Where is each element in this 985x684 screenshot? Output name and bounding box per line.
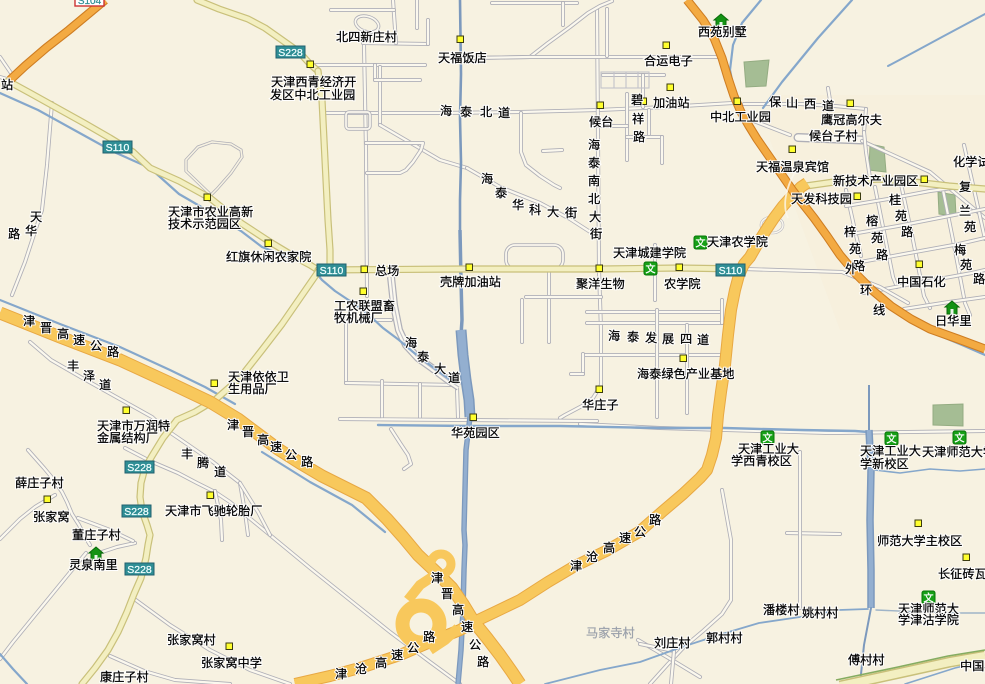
svg-text:路: 路 xyxy=(423,629,435,644)
svg-text:学新校区: 学新校区 xyxy=(860,456,909,471)
svg-text:丰: 丰 xyxy=(67,359,79,373)
svg-text:S110: S110 xyxy=(106,142,130,154)
svg-text:街: 街 xyxy=(590,227,602,241)
svg-text:候台子村: 候台子村 xyxy=(809,128,858,143)
svg-text:天津城建学院: 天津城建学院 xyxy=(613,245,686,260)
svg-text:北: 北 xyxy=(588,192,600,206)
svg-text:四: 四 xyxy=(680,332,692,346)
svg-text:金属结构厂: 金属结构厂 xyxy=(97,430,158,445)
svg-text:农学院: 农学院 xyxy=(664,276,701,291)
svg-text:路: 路 xyxy=(901,224,913,239)
svg-text:鹰冠高尔夫: 鹰冠高尔夫 xyxy=(821,112,882,127)
svg-text:津: 津 xyxy=(23,314,35,328)
svg-text:华庄子: 华庄子 xyxy=(582,397,619,412)
svg-text:海泰绿色产业基地: 海泰绿色产业基地 xyxy=(637,366,735,381)
svg-text:道: 道 xyxy=(822,99,834,113)
svg-text:大: 大 xyxy=(589,210,601,224)
svg-text:S110: S110 xyxy=(320,265,344,277)
svg-text:沧: 沧 xyxy=(355,661,367,676)
svg-text:速: 速 xyxy=(270,440,282,454)
svg-text:马家寺村: 马家寺村 xyxy=(586,625,635,640)
svg-text:速: 速 xyxy=(461,620,473,634)
svg-text:路: 路 xyxy=(876,247,888,262)
svg-text:速: 速 xyxy=(391,648,403,662)
svg-text:环: 环 xyxy=(860,283,872,297)
svg-text:保: 保 xyxy=(769,95,781,109)
svg-text:南: 南 xyxy=(588,173,600,188)
svg-text:沧: 沧 xyxy=(586,549,598,564)
svg-text:兰: 兰 xyxy=(959,204,971,218)
svg-text:高: 高 xyxy=(603,540,615,555)
svg-text:发区中北工业园: 发区中北工业园 xyxy=(270,87,355,102)
svg-text:科: 科 xyxy=(529,203,541,217)
svg-text:道: 道 xyxy=(448,371,460,385)
svg-text:路: 路 xyxy=(649,512,661,527)
svg-text:天津工业大: 天津工业大 xyxy=(860,444,921,458)
svg-text:复: 复 xyxy=(959,180,971,194)
svg-text:文: 文 xyxy=(696,237,706,250)
svg-text:技术示范园区: 技术示范园区 xyxy=(168,217,241,231)
svg-text:站: 站 xyxy=(1,78,13,92)
svg-text:公: 公 xyxy=(407,641,419,655)
svg-text:天: 天 xyxy=(30,210,42,224)
svg-text:津: 津 xyxy=(431,571,443,585)
svg-text:道: 道 xyxy=(498,106,510,120)
svg-text:苑: 苑 xyxy=(849,242,861,256)
svg-text:西苑别墅: 西苑别墅 xyxy=(698,25,747,39)
svg-text:S228: S228 xyxy=(127,564,152,576)
svg-text:苑: 苑 xyxy=(895,209,907,223)
svg-text:牧机械厂: 牧机械厂 xyxy=(334,310,383,325)
svg-text:发: 发 xyxy=(645,330,657,345)
svg-text:薛庄子村: 薛庄子村 xyxy=(15,475,64,490)
svg-text:路: 路 xyxy=(107,344,119,359)
svg-text:北四新庄村: 北四新庄村 xyxy=(336,29,397,44)
svg-text:腾: 腾 xyxy=(197,455,209,470)
svg-text:华: 华 xyxy=(512,197,524,212)
svg-text:S228: S228 xyxy=(124,506,149,518)
svg-text:壳牌加油站: 壳牌加油站 xyxy=(440,275,501,289)
svg-text:天津西青经济开: 天津西青经济开 xyxy=(271,74,356,89)
svg-text:华: 华 xyxy=(25,223,37,238)
svg-text:合运电子: 合运电子 xyxy=(644,53,693,68)
svg-text:泰: 泰 xyxy=(460,105,472,119)
svg-text:街: 街 xyxy=(565,206,577,220)
svg-text:山: 山 xyxy=(786,96,798,110)
svg-text:展: 展 xyxy=(662,332,674,346)
svg-text:中国石化: 中国石化 xyxy=(960,658,985,673)
svg-text:梅: 梅 xyxy=(954,242,966,257)
svg-text:海: 海 xyxy=(405,335,417,350)
svg-text:海: 海 xyxy=(440,103,452,118)
svg-text:新技术产业园区: 新技术产业园区 xyxy=(833,173,918,188)
svg-text:大: 大 xyxy=(547,205,559,219)
svg-text:泰: 泰 xyxy=(627,330,639,344)
svg-text:红旗休闲农家院: 红旗休闲农家院 xyxy=(226,249,311,264)
svg-text:S228: S228 xyxy=(278,47,303,59)
svg-text:线: 线 xyxy=(873,303,885,317)
svg-text:路: 路 xyxy=(477,654,489,669)
svg-text:S104: S104 xyxy=(78,0,102,7)
svg-text:晋: 晋 xyxy=(242,425,254,439)
svg-text:道: 道 xyxy=(99,378,111,392)
svg-text:华苑园区: 华苑园区 xyxy=(451,425,500,440)
svg-text:津: 津 xyxy=(570,559,582,573)
svg-text:泰: 泰 xyxy=(495,186,507,200)
svg-text:师范大学主校区: 师范大学主校区 xyxy=(877,533,962,548)
svg-text:晋: 晋 xyxy=(40,321,52,335)
svg-text:海: 海 xyxy=(608,328,620,343)
svg-text:化学试剂: 化学试剂 xyxy=(953,154,985,169)
svg-text:晋: 晋 xyxy=(441,587,453,601)
svg-text:速: 速 xyxy=(619,531,631,545)
svg-text:潘楼村: 潘楼村 xyxy=(763,602,800,617)
svg-text:傅村村: 傅村村 xyxy=(848,653,885,667)
svg-text:公: 公 xyxy=(90,339,102,353)
svg-text:张家窝村: 张家窝村 xyxy=(167,632,216,647)
svg-text:苑: 苑 xyxy=(871,231,883,245)
svg-text:姚村村: 姚村村 xyxy=(802,606,839,620)
svg-text:天津师范大学: 天津师范大学 xyxy=(922,444,985,459)
svg-text:丰: 丰 xyxy=(181,447,193,461)
svg-text:公: 公 xyxy=(469,638,481,652)
svg-text:天津农学院: 天津农学院 xyxy=(707,234,768,249)
svg-text:中北工业园: 中北工业园 xyxy=(710,109,771,124)
svg-text:道: 道 xyxy=(697,333,709,347)
svg-text:郭村村: 郭村村 xyxy=(706,630,743,645)
svg-text:苑: 苑 xyxy=(964,220,976,234)
svg-text:生用品厂: 生用品厂 xyxy=(228,382,277,396)
svg-text:梓: 梓 xyxy=(844,224,856,239)
svg-text:长征砖瓦厂: 长征砖瓦厂 xyxy=(938,566,985,581)
svg-text:天津市飞驰轮胎厂: 天津市飞驰轮胎厂 xyxy=(165,503,263,518)
svg-text:灵泉南里: 灵泉南里 xyxy=(69,557,118,572)
svg-text:总场: 总场 xyxy=(375,264,399,278)
svg-text:海: 海 xyxy=(588,137,600,152)
svg-text:路: 路 xyxy=(973,271,985,286)
svg-text:路: 路 xyxy=(633,129,645,144)
svg-text:碧: 碧 xyxy=(631,93,643,107)
svg-text:海: 海 xyxy=(481,171,493,186)
svg-text:公: 公 xyxy=(285,448,297,462)
svg-text:聚洋生物: 聚洋生物 xyxy=(576,276,625,291)
svg-text:榕: 榕 xyxy=(866,213,878,228)
svg-text:候台: 候台 xyxy=(589,114,613,129)
svg-text:天福温泉宾馆: 天福温泉宾馆 xyxy=(756,159,829,174)
svg-text:学津沽学院: 学津沽学院 xyxy=(898,612,959,627)
svg-text:大: 大 xyxy=(434,362,446,376)
svg-text:津: 津 xyxy=(227,418,239,432)
svg-text:泰: 泰 xyxy=(588,156,600,170)
svg-text:路: 路 xyxy=(301,454,313,469)
svg-text:高: 高 xyxy=(57,326,69,341)
svg-text:祥: 祥 xyxy=(632,112,644,126)
svg-text:公: 公 xyxy=(634,525,646,539)
svg-text:高: 高 xyxy=(375,655,387,670)
svg-text:津: 津 xyxy=(335,667,347,681)
svg-text:路: 路 xyxy=(8,226,20,241)
svg-text:日华里: 日华里 xyxy=(935,313,972,328)
svg-text:道: 道 xyxy=(214,465,226,479)
svg-text:学西青校区: 学西青校区 xyxy=(731,453,792,468)
svg-text:S110: S110 xyxy=(719,265,743,277)
svg-text:中国石化: 中国石化 xyxy=(897,274,946,289)
svg-text:文: 文 xyxy=(955,432,965,445)
svg-text:外: 外 xyxy=(845,262,857,276)
svg-text:董庄子村: 董庄子村 xyxy=(72,527,121,542)
svg-text:S228: S228 xyxy=(127,462,152,474)
svg-text:刘庄村: 刘庄村 xyxy=(654,635,691,650)
svg-text:加油站: 加油站 xyxy=(653,96,690,110)
svg-text:桂: 桂 xyxy=(889,192,901,207)
svg-text:苑: 苑 xyxy=(960,258,972,272)
svg-text:天发科技园: 天发科技园 xyxy=(791,191,852,206)
svg-text:西: 西 xyxy=(804,97,816,111)
svg-text:张家窝中学: 张家窝中学 xyxy=(201,655,262,670)
svg-text:北: 北 xyxy=(480,105,492,119)
svg-text:康庄子村: 康庄子村 xyxy=(100,669,149,684)
svg-text:泰: 泰 xyxy=(417,350,429,364)
svg-text:文: 文 xyxy=(646,263,656,276)
svg-text:天福饭店: 天福饭店 xyxy=(438,50,487,65)
svg-text:张家窝: 张家窝 xyxy=(33,509,70,524)
svg-text:高: 高 xyxy=(257,432,269,447)
svg-text:高: 高 xyxy=(452,602,464,617)
svg-text:速: 速 xyxy=(73,333,85,347)
svg-text:泽: 泽 xyxy=(83,369,95,383)
